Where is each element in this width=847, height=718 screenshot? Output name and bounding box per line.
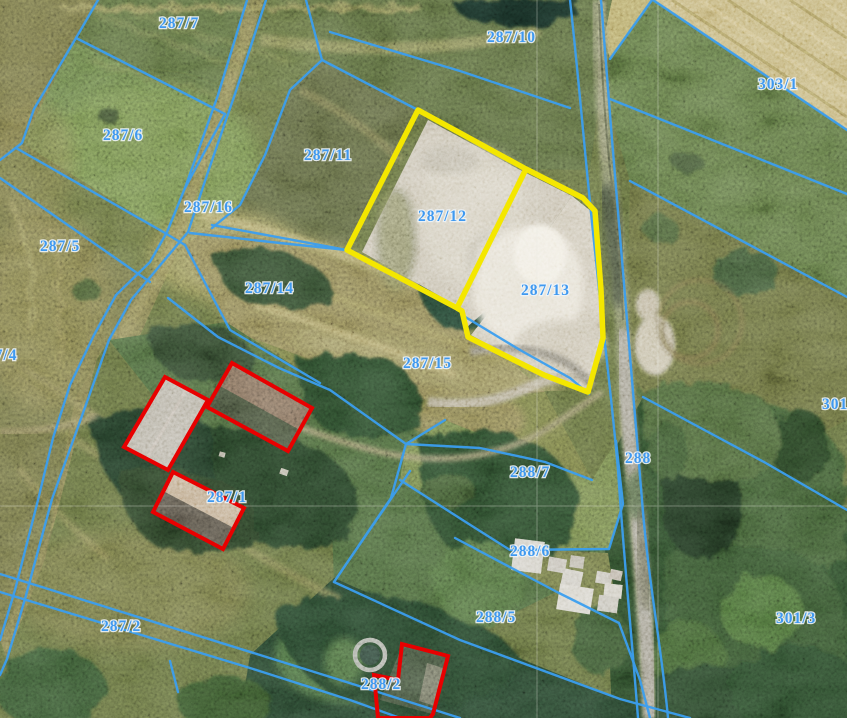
svg-text:87/4: 87/4 <box>0 347 18 364</box>
svg-text:303/1: 303/1 <box>758 76 798 93</box>
svg-text:287/10: 287/10 <box>487 29 536 46</box>
svg-text:287/2: 287/2 <box>101 618 141 635</box>
svg-text:301: 301 <box>822 396 847 413</box>
svg-text:287/14: 287/14 <box>245 280 294 297</box>
svg-text:287/15: 287/15 <box>403 355 452 372</box>
svg-text:301/3: 301/3 <box>776 610 816 627</box>
svg-text:288: 288 <box>625 450 651 467</box>
svg-text:287/1: 287/1 <box>207 489 247 506</box>
svg-text:287/13: 287/13 <box>521 282 570 299</box>
svg-text:288/2: 288/2 <box>361 676 401 693</box>
svg-text:288/7: 288/7 <box>510 464 550 481</box>
svg-text:287/6: 287/6 <box>103 127 143 144</box>
svg-text:288/6: 288/6 <box>510 543 550 560</box>
svg-text:287/11: 287/11 <box>304 147 352 164</box>
svg-text:287/16: 287/16 <box>184 199 233 216</box>
svg-text:287/7: 287/7 <box>159 15 199 32</box>
svg-text:287/5: 287/5 <box>40 238 80 255</box>
svg-text:288/5: 288/5 <box>476 609 516 626</box>
svg-text:287/12: 287/12 <box>418 208 467 225</box>
